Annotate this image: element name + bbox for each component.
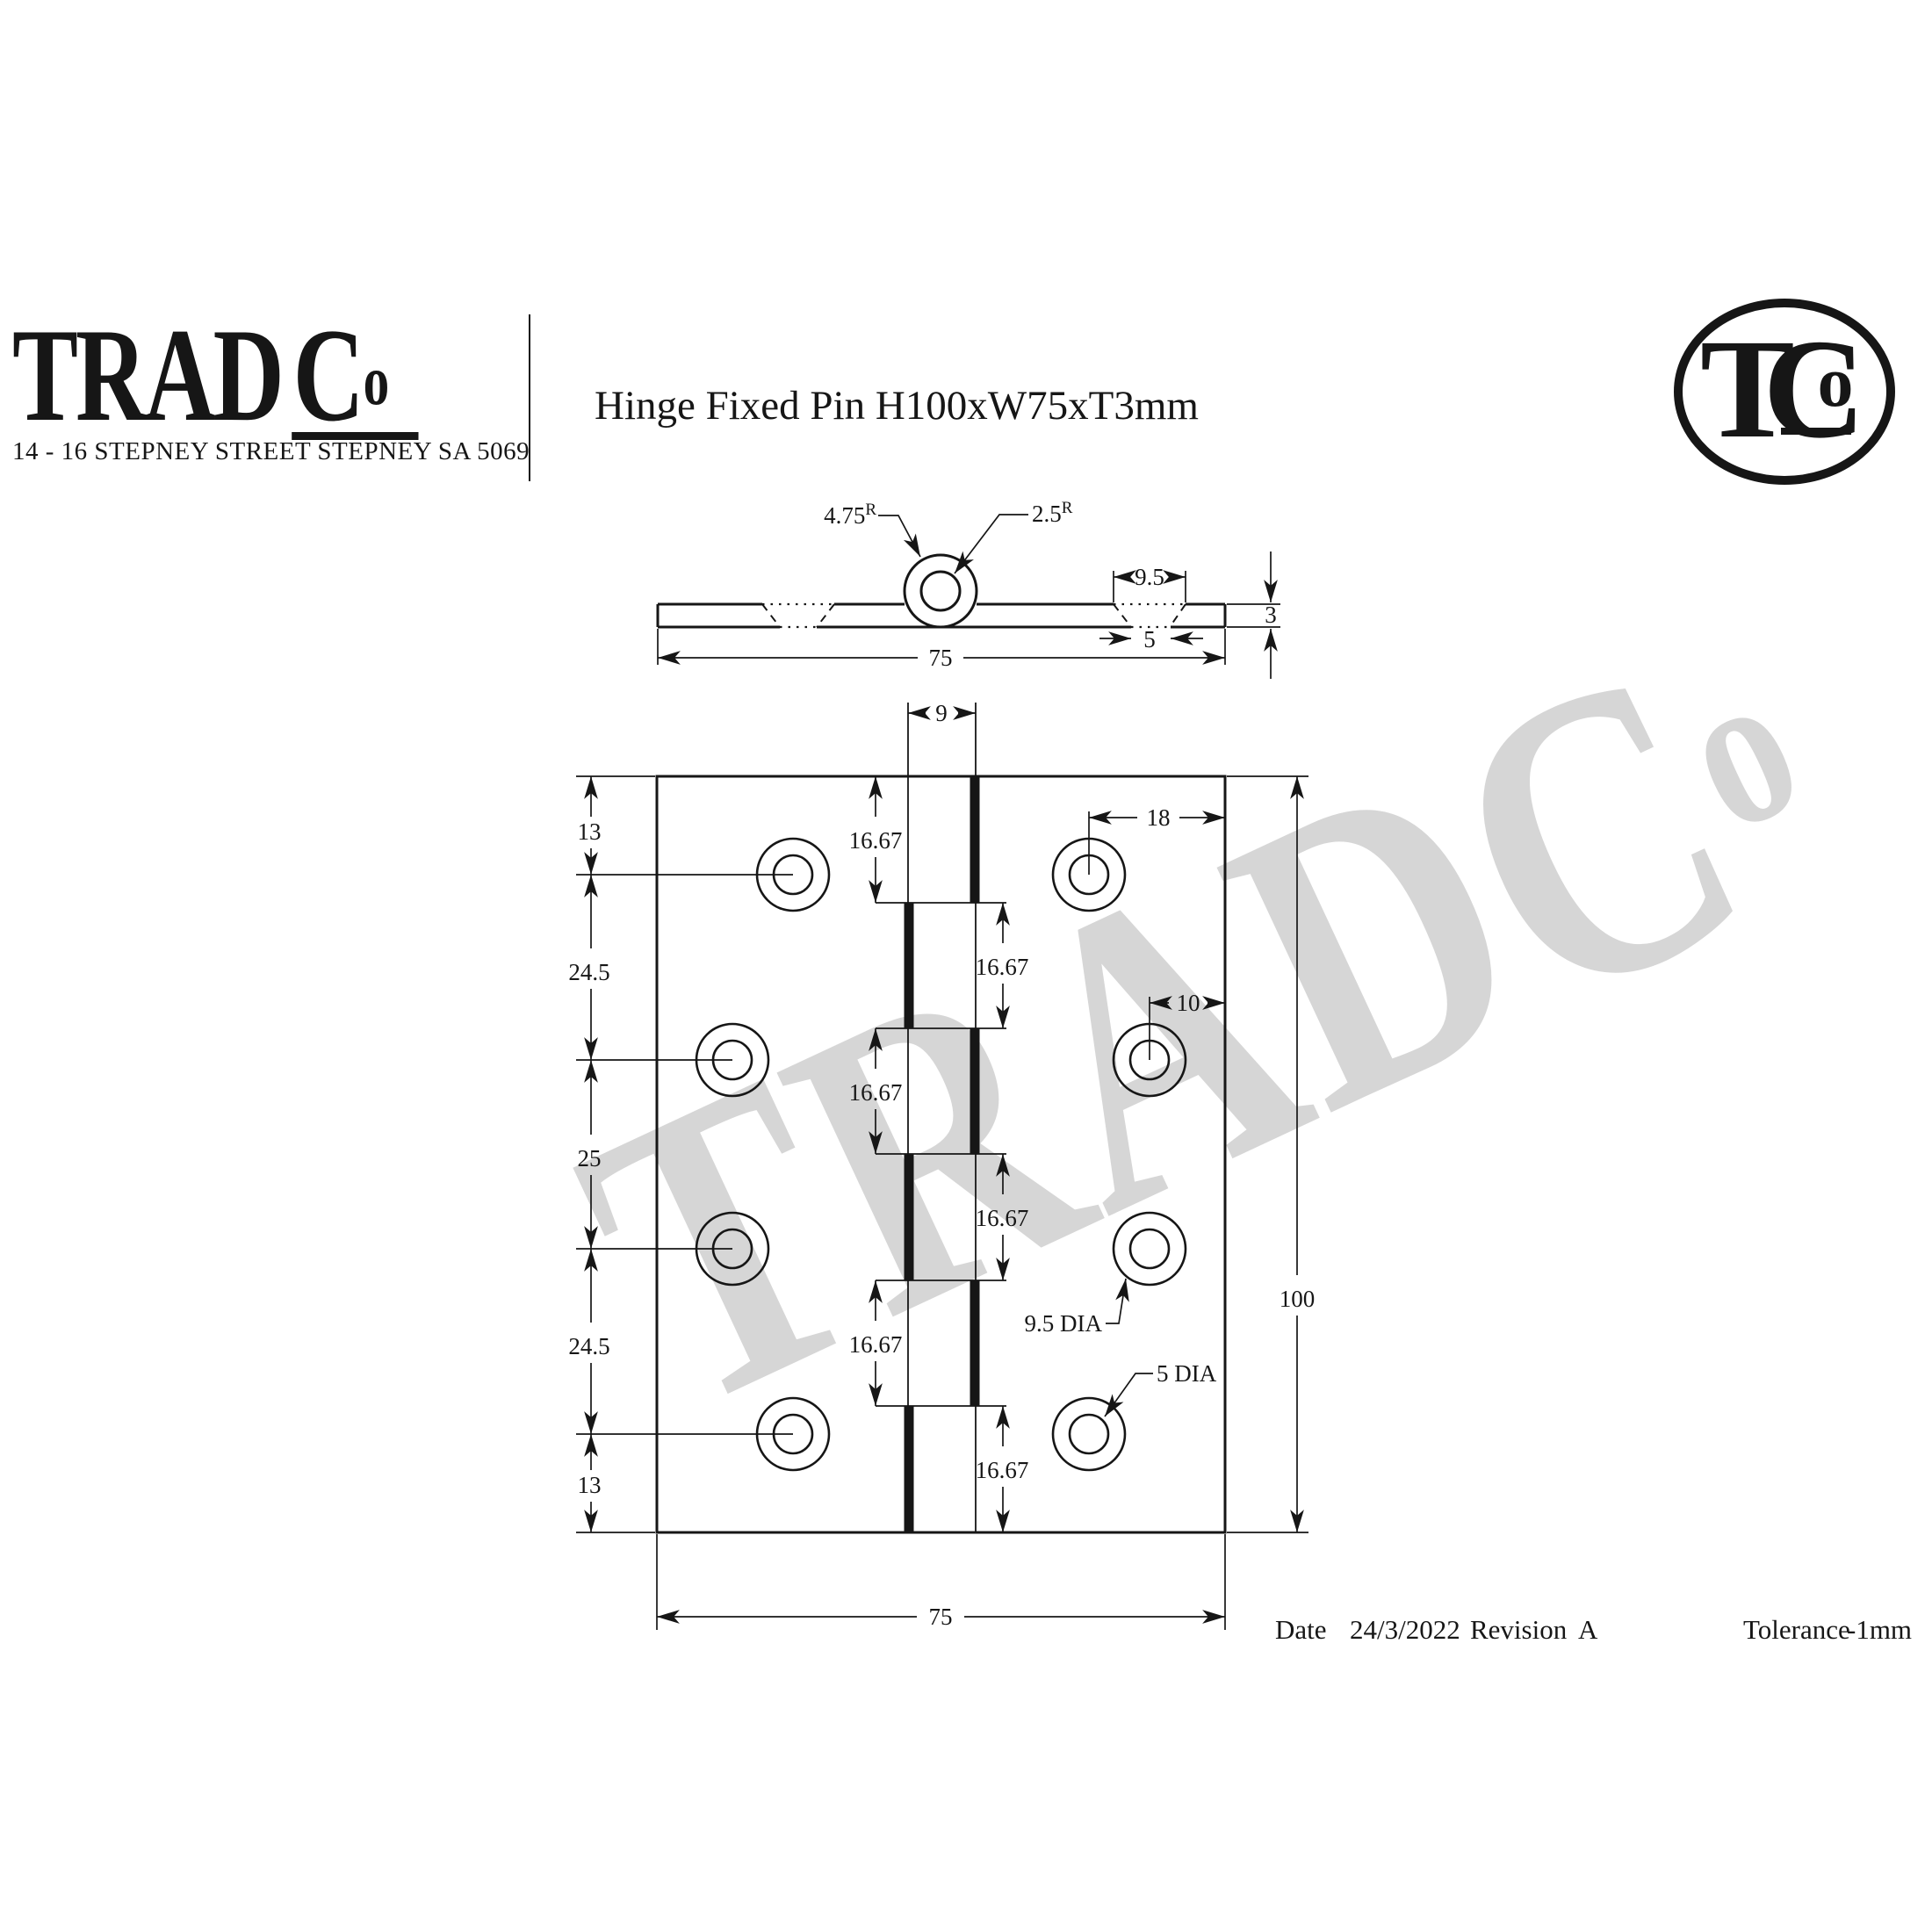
drawing-canvas: TRADCo TRAD C o 14 - 16 STEPNEY STREET S… (0, 0, 1932, 1932)
callout-hole-dia: 5 DIA (1105, 1360, 1217, 1417)
dim-inner-radius: 2.5R (955, 499, 1073, 573)
countersink-right-section (1114, 604, 1186, 627)
svg-text:TRADCo: TRADCo (528, 538, 1887, 1496)
revision-label: Revision (1470, 1614, 1568, 1645)
date-value: 24/3/2022 (1350, 1614, 1460, 1645)
watermark: TRADCo (528, 538, 1887, 1496)
section-view: 4.75R 2.5R 9.5 5 3 (658, 499, 1280, 679)
screw-hole (1053, 1398, 1125, 1470)
dim-overall-height-value: 100 (1280, 1286, 1316, 1312)
svg-text:2.5R: 2.5R (1032, 499, 1073, 527)
dim-thickness-value: 3 (1265, 602, 1277, 628)
pin-inner-circle (921, 572, 960, 610)
tolerance-value: -1mm (1847, 1614, 1912, 1645)
knuckle-section (905, 555, 977, 627)
dim-chain-value: 24.5 (568, 959, 609, 985)
hinge-leaf-right-section (977, 604, 1225, 627)
company-logo: TRAD C o (12, 301, 419, 449)
dim-segment-value: 16.67 (849, 1079, 903, 1106)
badge-underline (1781, 428, 1851, 435)
dim-segment-value: 16.67 (976, 1205, 1029, 1231)
dim-outer-radius: 4.75R (824, 501, 920, 557)
watermark-text: TRADC (528, 578, 1804, 1497)
dim-chain-value: 13 (578, 1472, 602, 1498)
logo-letter-o: o (364, 342, 390, 421)
logo-wordmark: TRAD (12, 301, 282, 449)
revision-value: A (1578, 1614, 1598, 1645)
logo-letter-c: C (293, 301, 362, 449)
badge-logo: T C o (1678, 303, 1891, 480)
dim-segment-value: 16.67 (976, 1457, 1029, 1483)
svg-text:4.75R: 4.75R (824, 501, 876, 529)
dim-section-width: 75 (658, 629, 1225, 671)
dim-segment-value: 16.67 (976, 954, 1029, 980)
dim-knuckle-width: 9 (908, 700, 976, 726)
dim-overall-width: 75 (657, 1534, 1225, 1630)
dim-knuckle-width-value: 9 (935, 700, 948, 726)
title-block: Date 24/3/2022 Revision A Tolerance -1mm (1275, 1614, 1912, 1645)
dim-segment-value: 16.67 (849, 827, 903, 854)
tolerance-label: Tolerance (1743, 1614, 1850, 1645)
callout-hole-dia-label: 5 DIA (1157, 1360, 1217, 1387)
dim-thickness: 3 (1227, 551, 1280, 679)
dim-countersink-bottom: 5 (1099, 626, 1203, 652)
dim-outer-radius-value: 4.75 (824, 502, 865, 529)
dim-chain-value: 25 (578, 1145, 602, 1171)
company-address: 14 - 16 STEPNEY STREET STEPNEY SA 5069 (12, 437, 530, 465)
dim-chain-13-top: 13 (578, 776, 602, 875)
date-label: Date (1275, 1614, 1327, 1645)
dim-overall-width-value: 75 (929, 1604, 953, 1630)
dim-outer-radius-unit: R (865, 501, 876, 519)
dim-countersink-top-value: 9.5 (1135, 564, 1164, 590)
dim-chain-13-bottom: 13 (578, 1434, 602, 1532)
dim-segment-6: 16.67 (976, 1406, 1029, 1532)
dim-section-width-value: 75 (929, 645, 953, 671)
dim-countersink-bottom-value: 5 (1143, 626, 1156, 652)
dim-hole-offset-mid-value: 10 (1177, 990, 1200, 1016)
dim-inner-radius-value: 2.5 (1032, 501, 1062, 527)
dim-hole-offset-top-value: 18 (1147, 804, 1171, 831)
countersink-left-section (762, 604, 834, 627)
drawing-sheet: TRADCo TRAD C o 14 - 16 STEPNEY STREET S… (0, 0, 1932, 1932)
page-title: Hinge Fixed Pin H100xW75xT3mm (595, 383, 1199, 429)
dim-inner-radius-unit: R (1062, 499, 1073, 517)
dim-countersink-top: 9.5 (1114, 564, 1186, 602)
callout-countersink-dia-label: 9.5 DIA (1025, 1310, 1103, 1337)
dim-segment-1: 16.67 (849, 776, 903, 903)
badge-letter-o: o (1818, 342, 1854, 422)
hinge-leaf-left-section (658, 604, 905, 627)
dim-segment-value: 16.67 (849, 1331, 903, 1358)
dim-chain-24-5-upper: 24.5 (568, 875, 609, 1060)
dim-chain-24-5-lower: 24.5 (568, 1249, 609, 1434)
dim-chain-value: 24.5 (568, 1333, 609, 1359)
dim-chain-value: 13 (578, 818, 602, 845)
